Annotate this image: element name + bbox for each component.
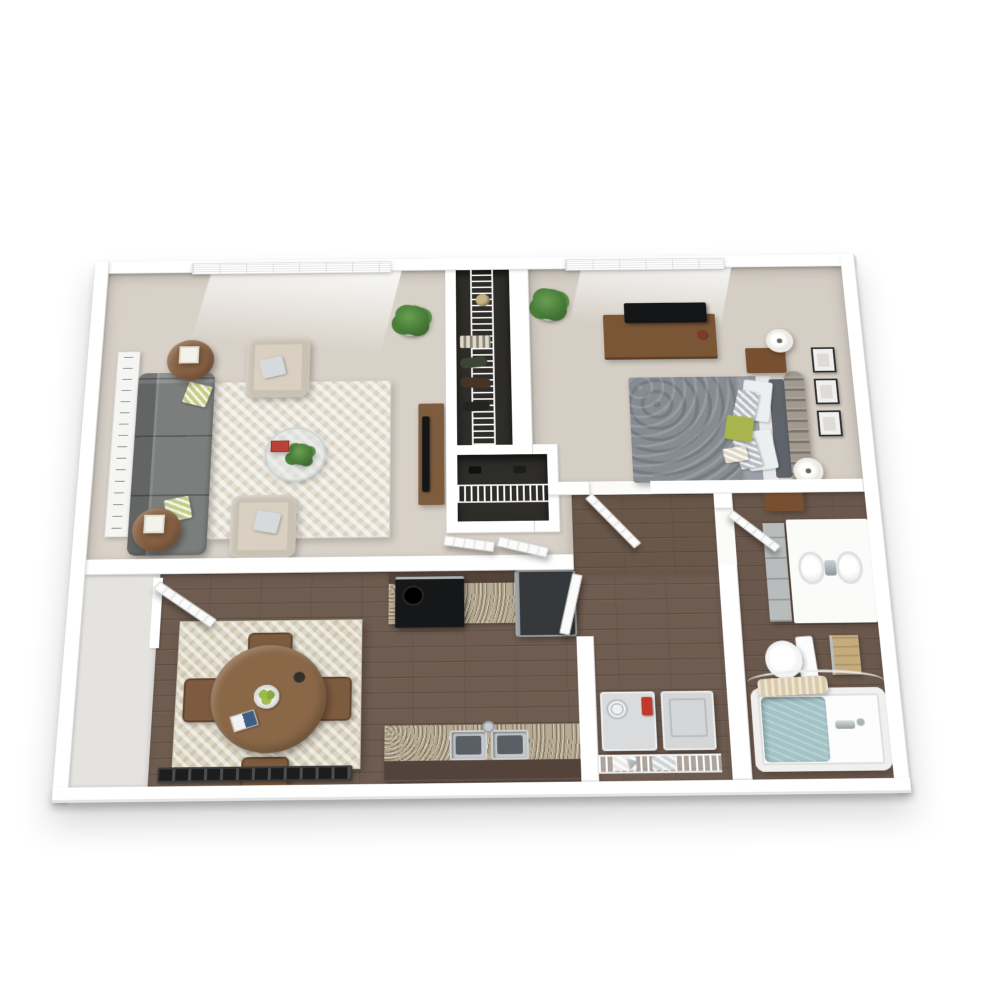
wall-frame-2 (814, 379, 840, 405)
plan-perspective-wrapper (52, 254, 912, 803)
baseboard-heater (157, 765, 353, 782)
dryer-lid (669, 698, 709, 737)
wall-frame-3 (817, 410, 843, 436)
lower-cabinet-face (384, 759, 583, 782)
sink-left-drain (456, 736, 482, 755)
floor-plan (52, 254, 912, 803)
shoes-1 (468, 466, 481, 474)
kitchen-faucet (484, 723, 493, 731)
shelf-towel-gray (652, 756, 677, 770)
bedroom-tv (624, 302, 707, 323)
coffee-table-book (270, 441, 289, 453)
vanity-faucets (824, 560, 837, 576)
shoes-2 (491, 464, 504, 472)
closet-striped-blanket (460, 335, 491, 348)
bathtub-water (760, 697, 830, 763)
living-room-window (192, 261, 391, 274)
page-background (0, 0, 1000, 1000)
washer-dial (608, 701, 626, 718)
lantern-candle-bottom (143, 515, 165, 534)
tub-faucet (835, 720, 855, 729)
living-tv (422, 416, 429, 491)
shoe-closet-wire-shelf (458, 484, 549, 503)
lantern-candle-top (179, 346, 200, 363)
dresser-decor (697, 330, 707, 339)
bed-pillow-green (724, 414, 754, 442)
tub-handle (856, 718, 865, 725)
range-stove (395, 576, 464, 628)
armchair-bottom-pillow (252, 510, 281, 534)
closet-hat (476, 294, 490, 306)
wall-frame-1 (811, 347, 837, 372)
bedroom-window (565, 258, 725, 271)
sink-right-drain (497, 735, 523, 754)
bedroom-south-wall-right (650, 479, 864, 495)
closet-clothes-brown (460, 377, 492, 389)
bathroom-west-wall-top (713, 493, 733, 508)
shoes-3 (513, 466, 526, 474)
detergent-bottle (641, 697, 653, 715)
